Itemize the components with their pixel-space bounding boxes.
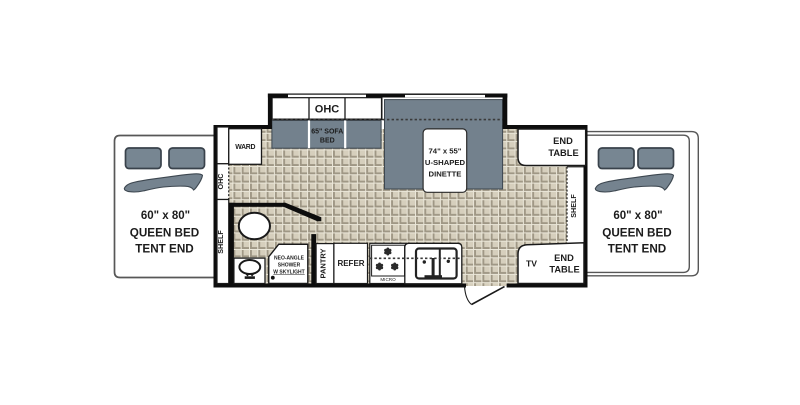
svg-text:QUEEN BED: QUEEN BED — [602, 226, 672, 239]
svg-text:60" x 80": 60" x 80" — [613, 210, 662, 222]
svg-text:NEO-ANGLE: NEO-ANGLE — [274, 255, 305, 261]
svg-text:BED: BED — [320, 137, 335, 144]
svg-text:DINETTE: DINETTE — [429, 169, 462, 178]
svg-text:60" x 80": 60" x 80" — [141, 210, 190, 222]
svg-text:QUEEN BED: QUEEN BED — [130, 226, 200, 239]
svg-text:SHELF: SHELF — [569, 194, 578, 218]
svg-text:PANTRY: PANTRY — [318, 249, 327, 279]
svg-text:U-SHAPED: U-SHAPED — [425, 158, 466, 167]
svg-text:MICRO: MICRO — [380, 277, 396, 282]
svg-text:SHOWER: SHOWER — [278, 262, 301, 268]
svg-text:OHC: OHC — [315, 104, 340, 116]
svg-text:WARD: WARD — [235, 144, 255, 151]
svg-text:OHC: OHC — [216, 174, 225, 190]
svg-text:END: END — [553, 136, 573, 146]
svg-text:W SKYLIGHT: W SKYLIGHT — [273, 269, 304, 275]
svg-text:TV: TV — [526, 259, 537, 269]
svg-text:END: END — [554, 253, 574, 263]
svg-text:65" SOFA: 65" SOFA — [311, 129, 343, 136]
svg-text:SHELF: SHELF — [216, 230, 225, 254]
svg-text:TENT END: TENT END — [608, 242, 666, 255]
svg-text:74" x 55": 74" x 55" — [429, 147, 462, 156]
svg-text:TABLE: TABLE — [548, 148, 578, 158]
svg-text:TENT END: TENT END — [135, 242, 193, 255]
svg-text:TABLE: TABLE — [549, 265, 579, 275]
svg-text:REFER: REFER — [337, 259, 364, 268]
